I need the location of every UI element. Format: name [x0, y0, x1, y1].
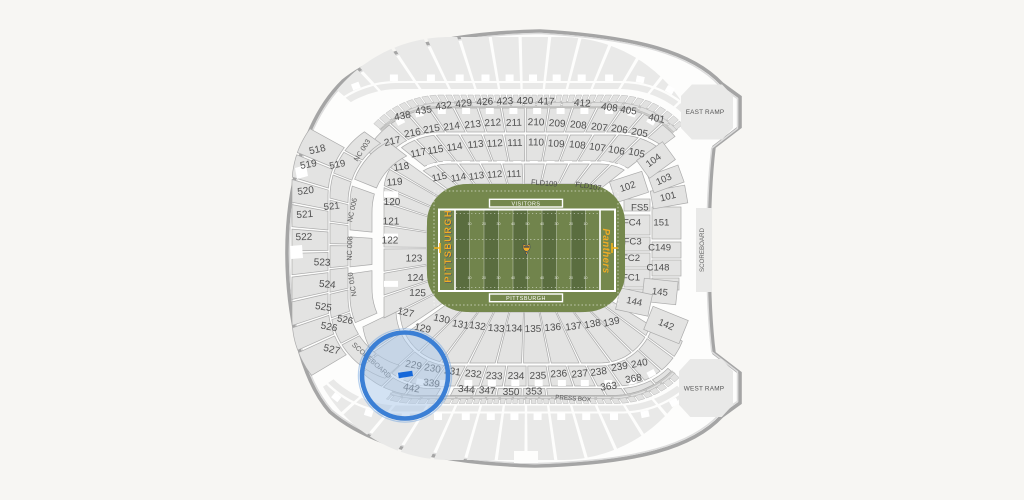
svg-text:521: 521 [323, 200, 340, 213]
svg-text:124: 124 [407, 273, 424, 284]
svg-text:423: 423 [496, 96, 513, 108]
svg-text:30: 30 [497, 222, 501, 226]
svg-text:134: 134 [506, 323, 523, 335]
svg-text:426: 426 [476, 96, 494, 108]
svg-text:207: 207 [590, 121, 608, 134]
svg-text:125: 125 [409, 288, 426, 300]
svg-text:112: 112 [487, 169, 503, 181]
svg-text:236: 236 [550, 368, 568, 380]
svg-text:108: 108 [568, 139, 586, 152]
svg-text:420: 420 [517, 96, 534, 107]
svg-text:113: 113 [467, 139, 484, 152]
svg-text:210: 210 [528, 117, 545, 128]
svg-text:40: 40 [540, 276, 544, 280]
svg-text:208: 208 [569, 119, 587, 132]
svg-text:521: 521 [296, 209, 314, 221]
svg-text:C148: C148 [647, 263, 670, 274]
svg-text:Panthers: Panthers [600, 228, 611, 273]
svg-text:20: 20 [482, 276, 486, 280]
svg-text:408: 408 [600, 102, 618, 115]
svg-text:PITTSBURGH: PITTSBURGH [443, 209, 453, 282]
svg-text:30: 30 [497, 276, 501, 280]
svg-text:40: 40 [511, 222, 515, 226]
svg-text:145: 145 [651, 286, 668, 299]
svg-text:214: 214 [443, 120, 461, 133]
svg-text:10: 10 [468, 222, 472, 226]
svg-text:120: 120 [384, 197, 401, 208]
svg-text:118: 118 [393, 161, 411, 174]
svg-text:30: 30 [555, 276, 559, 280]
svg-text:10: 10 [584, 276, 588, 280]
svg-text:121: 121 [383, 217, 400, 228]
svg-text:123: 123 [406, 254, 423, 265]
svg-text:112: 112 [486, 138, 503, 150]
svg-text:353: 353 [526, 386, 543, 397]
svg-text:347: 347 [478, 385, 496, 397]
svg-text:520: 520 [297, 185, 315, 198]
svg-text:111: 111 [507, 138, 523, 149]
svg-text:136: 136 [544, 322, 562, 334]
svg-text:212: 212 [484, 117, 502, 129]
svg-text:FC4: FC4 [623, 218, 642, 229]
svg-text:151: 151 [653, 218, 669, 229]
svg-text:237: 237 [571, 368, 589, 381]
svg-text:211: 211 [506, 118, 523, 129]
svg-text:SCOREBOARD: SCOREBOARD [699, 227, 706, 272]
svg-text:235: 235 [529, 371, 546, 382]
svg-text:119: 119 [386, 176, 403, 188]
svg-text:20: 20 [482, 222, 486, 226]
svg-text:C149: C149 [648, 243, 671, 254]
svg-text:EAST RAMP: EAST RAMP [686, 109, 725, 116]
svg-text:PITTSBURGH: PITTSBURGH [506, 296, 546, 302]
svg-text:10: 10 [584, 222, 588, 226]
svg-text:20: 20 [569, 222, 573, 226]
svg-text:137: 137 [565, 320, 583, 333]
svg-text:429: 429 [455, 98, 473, 111]
svg-text:20: 20 [569, 276, 573, 280]
svg-text:30: 30 [555, 222, 559, 226]
svg-text:523: 523 [314, 257, 331, 269]
svg-text:133: 133 [487, 323, 505, 335]
svg-text:VISITORS: VISITORS [511, 201, 540, 207]
svg-text:40: 40 [540, 222, 544, 226]
svg-text:232: 232 [464, 368, 482, 381]
svg-text:432: 432 [435, 100, 453, 113]
svg-text:FC3: FC3 [624, 237, 642, 248]
svg-text:234: 234 [508, 371, 525, 382]
svg-text:213: 213 [464, 119, 482, 132]
svg-text:524: 524 [318, 279, 336, 291]
svg-text:238: 238 [590, 366, 608, 379]
svg-text:233: 233 [485, 371, 503, 383]
svg-text:40: 40 [511, 276, 515, 280]
svg-text:363: 363 [600, 380, 618, 393]
svg-text:522: 522 [295, 232, 312, 243]
svg-text:109: 109 [547, 138, 565, 150]
svg-text:NC 008: NC 008 [345, 236, 355, 261]
svg-text:417: 417 [538, 96, 555, 108]
svg-text:122: 122 [382, 236, 399, 247]
svg-text:132: 132 [468, 320, 486, 333]
svg-text:WEST RAMP: WEST RAMP [684, 386, 724, 393]
svg-text:113: 113 [468, 170, 485, 183]
svg-text:50: 50 [526, 222, 530, 226]
svg-text:350: 350 [503, 387, 520, 398]
svg-text:209: 209 [548, 118, 566, 130]
svg-text:10: 10 [468, 276, 472, 280]
svg-text:111: 111 [506, 169, 521, 181]
svg-text:412: 412 [573, 97, 591, 109]
svg-text:50: 50 [526, 276, 530, 280]
svg-text:FS5: FS5 [631, 203, 649, 214]
svg-text:344: 344 [457, 384, 475, 397]
svg-text:135: 135 [524, 324, 541, 335]
svg-text:110: 110 [528, 137, 545, 148]
